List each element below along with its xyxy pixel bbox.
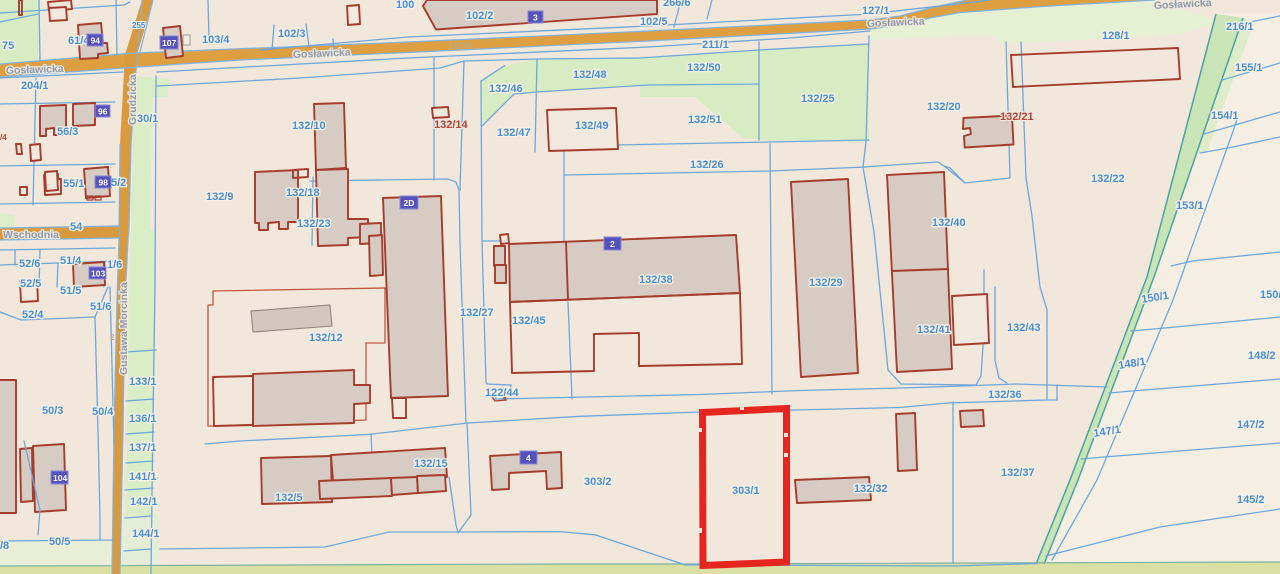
svg-text:303/2: 303/2 xyxy=(584,476,612,488)
svg-text:132/12: 132/12 xyxy=(309,332,343,344)
svg-text:132/20: 132/20 xyxy=(927,101,961,113)
svg-text:155/1: 155/1 xyxy=(1235,62,1263,74)
svg-text:4: 4 xyxy=(526,453,531,463)
svg-text:147/2: 147/2 xyxy=(1237,419,1265,431)
svg-text:153/1: 153/1 xyxy=(1176,200,1204,212)
svg-text:104: 104 xyxy=(53,473,67,483)
svg-text:132/48: 132/48 xyxy=(573,69,607,81)
svg-text:52/6: 52/6 xyxy=(19,258,40,270)
svg-text:132/38: 132/38 xyxy=(639,274,673,286)
svg-text:132/50: 132/50 xyxy=(687,62,721,74)
svg-text:132/25: 132/25 xyxy=(801,93,835,105)
svg-text:132/29: 132/29 xyxy=(809,277,843,289)
svg-text:Gosławicka: Gosławicka xyxy=(293,46,351,61)
svg-text:132/22: 132/22 xyxy=(1091,173,1125,185)
svg-text:132/41: 132/41 xyxy=(917,324,951,336)
svg-text:132/5: 132/5 xyxy=(275,492,303,504)
svg-text:303/1: 303/1 xyxy=(732,485,760,497)
svg-text:102/2: 102/2 xyxy=(466,10,494,22)
svg-text:56/3: 56/3 xyxy=(57,126,78,138)
svg-text:2: 2 xyxy=(110,333,115,342)
svg-text:Gosławicka: Gosławicka xyxy=(867,15,925,30)
svg-text:128/1: 128/1 xyxy=(1102,30,1130,42)
svg-text:255: 255 xyxy=(132,21,146,30)
svg-text:132/51: 132/51 xyxy=(688,114,722,126)
svg-text:132/47: 132/47 xyxy=(497,127,531,139)
svg-text:55/1: 55/1 xyxy=(63,178,84,190)
svg-text:102/3: 102/3 xyxy=(278,28,306,40)
svg-text:107: 107 xyxy=(162,38,176,48)
svg-text:/4: /4 xyxy=(0,133,7,142)
svg-text:144/1: 144/1 xyxy=(132,528,160,540)
svg-text:50/4: 50/4 xyxy=(92,406,114,418)
svg-text:136/1: 136/1 xyxy=(129,413,157,425)
svg-text:51/5: 51/5 xyxy=(60,285,81,297)
svg-text:30/1: 30/1 xyxy=(137,113,158,125)
svg-text:132/27: 132/27 xyxy=(460,307,494,319)
svg-text:75: 75 xyxy=(2,40,14,52)
svg-text:51/6: 51/6 xyxy=(90,301,111,313)
svg-text:54: 54 xyxy=(70,221,83,233)
svg-text:132/43: 132/43 xyxy=(1007,322,1041,334)
svg-text:2: 2 xyxy=(610,239,615,249)
svg-text:137/1: 137/1 xyxy=(129,442,157,454)
svg-text:142/1: 142/1 xyxy=(130,496,158,508)
svg-text:132/21: 132/21 xyxy=(1000,111,1034,123)
svg-text:103/4: 103/4 xyxy=(202,34,230,46)
svg-text:211/1: 211/1 xyxy=(702,39,729,51)
svg-text:132/18: 132/18 xyxy=(286,187,320,199)
svg-text:102/5: 102/5 xyxy=(640,16,668,28)
svg-text:1/6: 1/6 xyxy=(107,259,122,271)
svg-text:2D: 2D xyxy=(404,198,415,208)
svg-text:Gustawa Morcinka: Gustawa Morcinka xyxy=(118,282,130,375)
svg-text:132/49: 132/49 xyxy=(575,120,609,132)
svg-text:Gosławicka: Gosławicka xyxy=(6,63,64,77)
svg-text:94: 94 xyxy=(91,36,101,46)
svg-text:/8: /8 xyxy=(0,540,9,552)
svg-text:145/2: 145/2 xyxy=(1237,494,1265,506)
svg-text:96: 96 xyxy=(98,107,108,117)
svg-text:141/1: 141/1 xyxy=(129,471,157,483)
svg-text:204/1: 204/1 xyxy=(21,80,49,92)
svg-text:50/3: 50/3 xyxy=(42,405,63,417)
svg-text:Wschodnia: Wschodnia xyxy=(3,229,59,241)
svg-text:132/10: 132/10 xyxy=(292,120,326,132)
svg-text:216/1: 216/1 xyxy=(1226,21,1254,33)
svg-text:3: 3 xyxy=(533,13,538,23)
svg-text:132/32: 132/32 xyxy=(854,483,888,495)
svg-text:132/45: 132/45 xyxy=(512,315,546,327)
svg-text:132/15: 132/15 xyxy=(414,458,448,470)
svg-text:132/26: 132/26 xyxy=(690,159,724,171)
svg-text:133/1: 133/1 xyxy=(129,376,157,388)
svg-text:150/: 150/ xyxy=(1260,289,1280,301)
svg-text:127/1: 127/1 xyxy=(862,5,890,17)
svg-text:5/2: 5/2 xyxy=(111,177,126,189)
svg-text:132/37: 132/37 xyxy=(1001,467,1035,479)
svg-text:51/4: 51/4 xyxy=(60,255,82,267)
svg-text:132/23: 132/23 xyxy=(297,218,331,230)
svg-text:122/44: 122/44 xyxy=(485,387,520,399)
svg-text:132/36: 132/36 xyxy=(988,389,1022,401)
svg-text:132/46: 132/46 xyxy=(489,83,523,95)
svg-text:132/40: 132/40 xyxy=(932,217,966,229)
svg-text:148/2: 148/2 xyxy=(1248,350,1276,362)
svg-text:52/5: 52/5 xyxy=(20,278,41,290)
svg-text:154/1: 154/1 xyxy=(1211,110,1239,122)
svg-text:266/6: 266/6 xyxy=(663,0,691,9)
svg-text:102/4: 102/4 xyxy=(449,40,472,51)
svg-text:50/5: 50/5 xyxy=(49,536,70,548)
svg-text:100: 100 xyxy=(396,0,414,11)
svg-text:132/14: 132/14 xyxy=(434,119,469,131)
svg-text:Grudzicka: Grudzicka xyxy=(127,74,139,125)
svg-text:132/9: 132/9 xyxy=(206,191,234,203)
svg-text:103: 103 xyxy=(91,269,105,279)
svg-text:98: 98 xyxy=(99,178,109,188)
svg-text:52/4: 52/4 xyxy=(22,309,44,321)
